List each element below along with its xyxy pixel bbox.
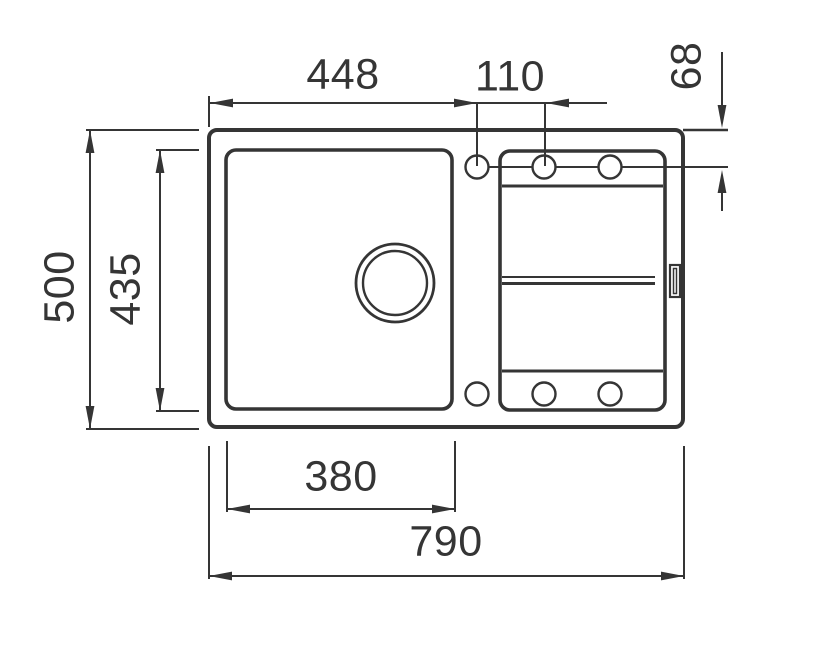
arrowhead-500-bottom [86, 406, 95, 429]
arrowhead-435-bottom [156, 388, 165, 411]
faucet-hole-bottom-3 [599, 383, 622, 406]
arrowhead-68-down [718, 105, 727, 128]
drain-circle-outer [356, 244, 434, 322]
sink-bowl [226, 150, 452, 409]
arrowhead-435-top [156, 150, 165, 173]
arrowhead-500-top [86, 130, 95, 153]
faucet-holes-group [466, 156, 622, 406]
arrowhead-448-left [210, 99, 233, 108]
arrowhead-790-right [661, 572, 684, 581]
faucet-hole-bottom-1 [466, 383, 489, 406]
dim-label-448: 448 [306, 54, 379, 97]
drain-circle-inner [363, 251, 427, 315]
arrowhead-380-left [227, 505, 250, 514]
overflow-slot-inner [674, 269, 677, 294]
arrowhead-790-left [209, 572, 232, 581]
faucet-hole-top-3 [599, 156, 622, 179]
dim-label-68: 68 [666, 42, 709, 91]
dim-label-110: 110 [475, 56, 545, 99]
arrowhead-380-right [432, 505, 455, 514]
dim-label-790: 790 [409, 521, 482, 564]
arrowhead-448-right [454, 99, 477, 108]
arrowhead-110-right [546, 99, 569, 108]
arrowhead-68-up [718, 170, 727, 193]
dim-label-380: 380 [304, 456, 377, 499]
sink-technical-drawing: 448 110 68 500 435 380 790 [0, 0, 822, 655]
dimension-435-group [156, 150, 199, 411]
overflow-slot-outer [670, 265, 680, 297]
dim-label-435: 435 [105, 252, 148, 325]
faucet-hole-bottom-2 [533, 383, 556, 406]
dim-label-500: 500 [39, 250, 82, 323]
